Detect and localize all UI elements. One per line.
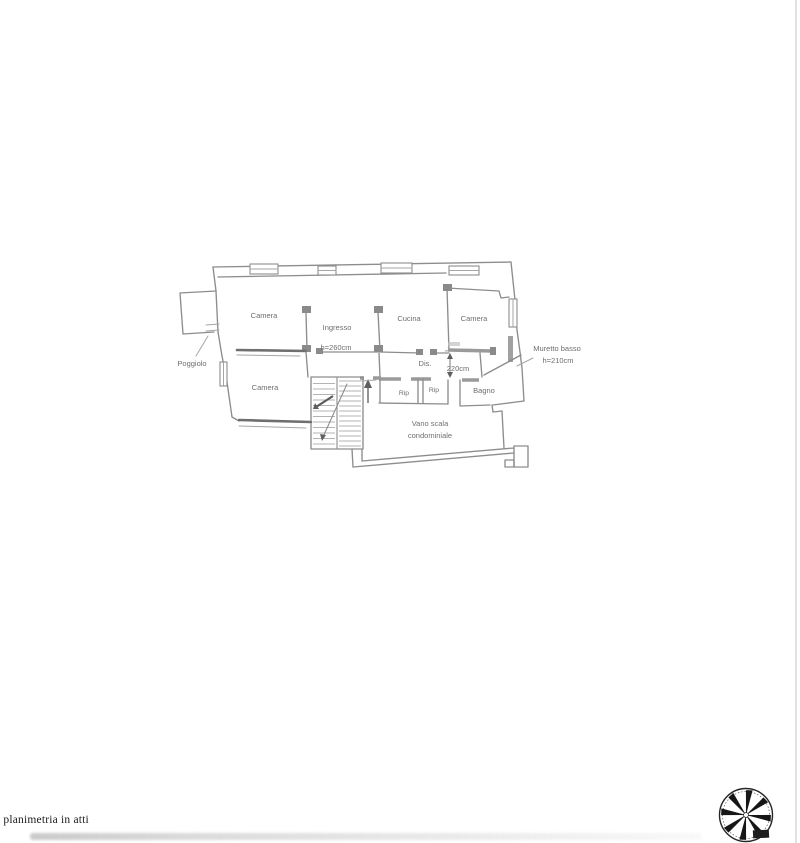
window-symbols: [220, 263, 517, 386]
scanned-floor-plan-page: Camera Ingresso h=260cm Cucina Camera Ca…: [0, 0, 800, 843]
poggiolo-leader-line: [196, 336, 208, 356]
annotation-ceiling-height: h=260cm: [320, 343, 351, 352]
interior-walls: [237, 284, 533, 377]
room-label-dis: Dis.: [419, 359, 432, 368]
staircase: [311, 377, 363, 449]
room-label-vano-scala-line2: condominiale: [408, 431, 452, 440]
scan-artifact-strip: [30, 833, 702, 840]
stair-arrow-icon: [320, 434, 326, 441]
room-label-rip-2: Rip: [429, 387, 439, 394]
room-label-bagno: Bagno: [473, 386, 495, 395]
annotation-muretto-line2: h=210cm: [542, 356, 573, 365]
window-symbol: [220, 362, 227, 386]
room-label-rip-1: Rip: [399, 390, 409, 397]
footer-note: a planimetria in atti: [0, 814, 89, 826]
dimension-label-220cm: 220cm: [447, 364, 470, 373]
page-edge-line: [795, 0, 797, 843]
room-label-camera-ne: Camera: [461, 314, 489, 323]
room-label-camera-nw: Camera: [251, 311, 279, 320]
closets-and-bath-walls: [360, 378, 490, 406]
room-label-ingresso: Ingresso: [323, 323, 352, 332]
room-label-camera-sw: Camera: [252, 383, 280, 392]
scan-ink-mark: [753, 830, 769, 839]
window-symbol: [449, 266, 479, 275]
window-symbol: [250, 264, 278, 274]
balcony-poggiolo: [180, 291, 219, 356]
annotation-muretto-line1: Muretto basso: [533, 344, 581, 353]
room-label-cucina: Cucina: [397, 314, 421, 323]
window-symbol: [509, 299, 517, 327]
floor-plan-drawing: Camera Ingresso h=260cm Cucina Camera Ca…: [0, 0, 800, 843]
bottom-walls: [239, 420, 528, 467]
floor-plan: Camera Ingresso h=260cm Cucina Camera Ca…: [177, 262, 580, 467]
room-label-poggiolo: Poggiolo: [177, 359, 206, 368]
window-symbol: [381, 263, 412, 273]
muretto-leader-line: [517, 358, 533, 366]
window-symbol: [318, 266, 336, 275]
stair-direction-line: [323, 384, 347, 437]
room-label-vano-scala-line1: Vano scala: [412, 419, 449, 428]
